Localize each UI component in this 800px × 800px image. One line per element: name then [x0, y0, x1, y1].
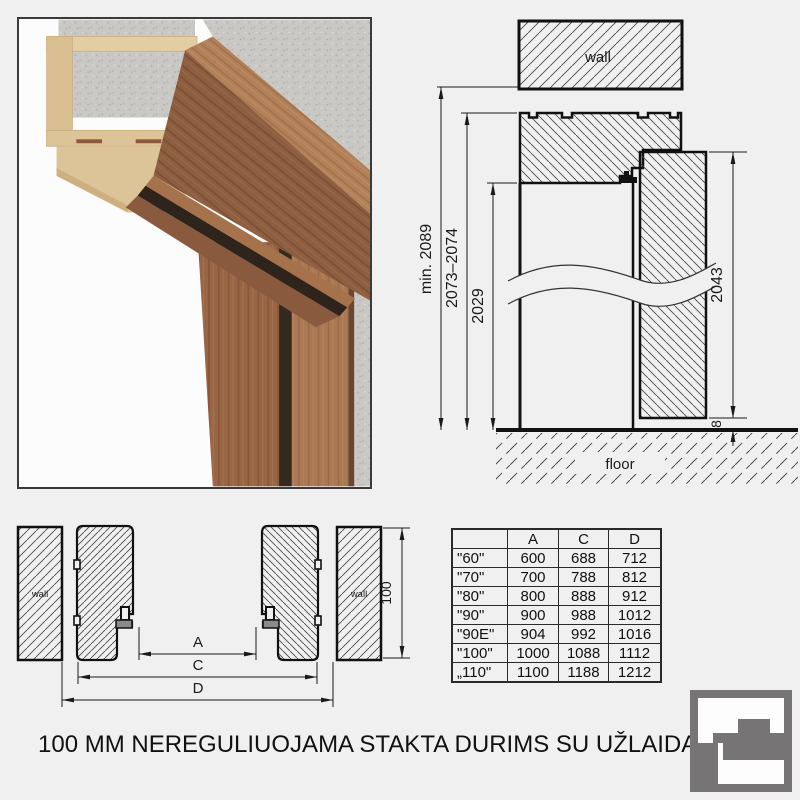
frame-profile-right	[262, 526, 321, 660]
cell-a: 900	[508, 606, 559, 625]
vertical-section-diagram: wall floor min. 2089 2073–2074 2029 2043…	[405, 0, 800, 505]
dim-depth-label: 100	[378, 581, 394, 605]
row-label: „110"	[452, 663, 508, 683]
cell-c: 992	[559, 625, 609, 644]
table-row: "100" 1000 1088 1112	[452, 644, 661, 663]
cell-c: 988	[559, 606, 609, 625]
row-label: "70"	[452, 568, 508, 587]
cell-d: 1016	[609, 625, 662, 644]
row-label: "90"	[452, 606, 508, 625]
table-row: „110" 1100 1188 1212	[452, 663, 661, 683]
horizontal-section-diagram: wall wall A C D 100	[0, 505, 445, 720]
cell-d: 1112	[609, 644, 662, 663]
header-a: A	[508, 529, 559, 549]
cell-a: 1000	[508, 644, 559, 663]
cell-d: 1212	[609, 663, 662, 683]
cell-d: 1012	[609, 606, 662, 625]
door-frame-3d-render	[19, 19, 370, 487]
floor-label: floor	[605, 456, 634, 473]
cell-a: 1100	[508, 663, 559, 683]
table-row: "70" 700 788 812	[452, 568, 661, 587]
cell-a: 800	[508, 587, 559, 606]
cell-a: 904	[508, 625, 559, 644]
table-row: "90" 900 988 1012	[452, 606, 661, 625]
header-d: D	[609, 529, 662, 549]
dim-c-label: C	[193, 657, 204, 674]
dim-total-height: min. 2089	[418, 224, 435, 294]
wall-label: wall	[584, 49, 611, 66]
cell-d: 812	[609, 568, 662, 587]
dim-floor-gap: 8	[708, 420, 724, 428]
header-blank	[452, 529, 508, 549]
cell-a: 600	[508, 549, 559, 568]
page-title: 100 MM NEREGULIUOJAMA STAKTA DURIMS SU U…	[38, 731, 758, 759]
table-row: "90E" 904 992 1016	[452, 625, 661, 644]
cell-c: 1188	[559, 663, 609, 683]
cell-d: 712	[609, 549, 662, 568]
cell-d: 912	[609, 587, 662, 606]
product-photo-3d	[17, 17, 372, 489]
brand-logo	[690, 690, 792, 792]
dim-opening-height: 2029	[470, 288, 487, 324]
table-row: "80" 800 888 912	[452, 587, 661, 606]
cell-c: 688	[559, 549, 609, 568]
cell-c: 788	[559, 568, 609, 587]
cell-c: 888	[559, 587, 609, 606]
row-label: "90E"	[452, 625, 508, 644]
table-header-row: A C D	[452, 529, 661, 549]
cell-a: 700	[508, 568, 559, 587]
dim-door-height: 2043	[709, 267, 726, 303]
wall-left-label: wall	[31, 589, 48, 600]
row-label: "80"	[452, 587, 508, 606]
dim-d-label: D	[193, 680, 204, 697]
dim-a-label: A	[193, 634, 203, 651]
wall-right-label: wall	[350, 589, 367, 600]
table-row: "60" 600 688 712	[452, 549, 661, 568]
row-label: "100"	[452, 644, 508, 663]
frame-profile-left	[74, 526, 133, 660]
dim-frame-height: 2073–2074	[444, 228, 461, 308]
frame-profile-logo-icon	[690, 690, 792, 792]
row-label: "60"	[452, 549, 508, 568]
header-c: C	[559, 529, 609, 549]
cell-c: 1088	[559, 644, 609, 663]
dimensions-table: A C D "60" 600 688 712 "70" 700 788 812 …	[451, 528, 662, 683]
